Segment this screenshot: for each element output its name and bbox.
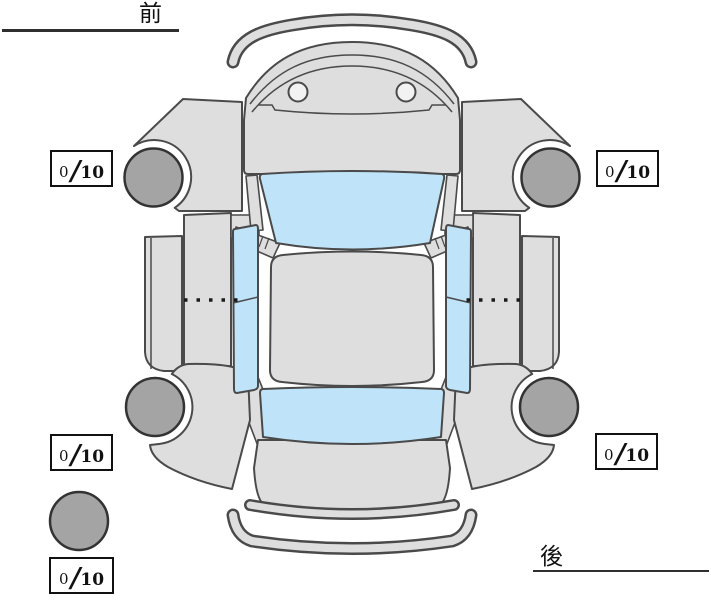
tread-rating-spare: 0/10 (49, 557, 114, 594)
tread-rating-front-right: 0/10 (596, 150, 659, 187)
roof (270, 252, 434, 387)
washer-nozzle-right-icon (397, 83, 416, 102)
rating-max: 10 (80, 165, 104, 182)
rating-max: 10 (80, 572, 104, 589)
rating-separator: / (617, 161, 627, 182)
rear-window (260, 387, 444, 444)
rating-max: 10 (80, 449, 104, 466)
front-underline (2, 29, 179, 32)
tread-rating-rear-right: 0/10 (595, 433, 658, 470)
tire-front-right (522, 149, 580, 207)
windshield (260, 171, 445, 250)
washer-nozzle-left-icon (289, 83, 308, 102)
hood (244, 42, 460, 174)
rear-bumper-outer (233, 515, 471, 549)
rating-value: 0 (604, 448, 614, 463)
rear-underline (533, 570, 709, 572)
tire-rear-right (520, 378, 578, 436)
car-top-view (0, 0, 711, 600)
rating-separator: / (616, 444, 626, 465)
left-door-panel (184, 213, 231, 368)
rating-value: 0 (59, 165, 69, 180)
tread-rating-front-left: 0/10 (50, 150, 113, 187)
trunk (254, 440, 450, 512)
tire-spare (50, 492, 108, 550)
rating-separator: / (71, 445, 81, 466)
rating-value: 0 (59, 449, 69, 464)
rating-value: 0 (605, 165, 615, 180)
rating-separator: / (71, 568, 81, 589)
tire-front-left (125, 149, 183, 207)
rating-separator: / (71, 161, 81, 182)
left-side-windows (233, 225, 258, 393)
tread-rating-rear-left: 0/10 (50, 434, 113, 471)
rear-label: 後 (540, 546, 563, 569)
rating-value: 0 (59, 572, 69, 587)
car-condition-diagram: 前 後 0/10 0/10 0/10 0/10 0/10 (0, 0, 711, 600)
tire-rear-left (126, 378, 184, 436)
rating-max: 10 (626, 165, 650, 182)
rating-max: 10 (625, 448, 649, 465)
front-label: 前 (139, 3, 162, 26)
